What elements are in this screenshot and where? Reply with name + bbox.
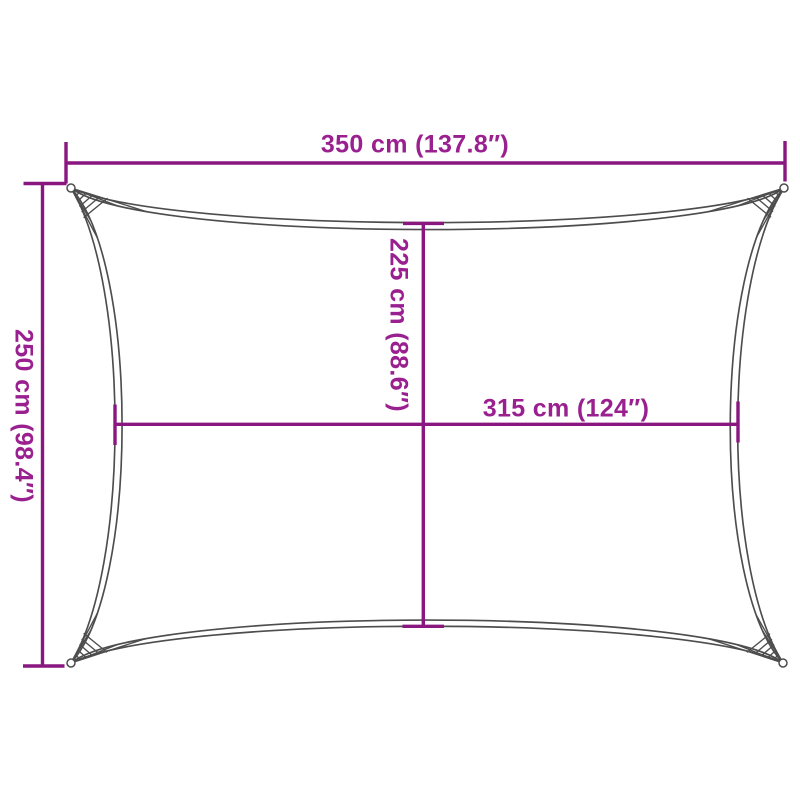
svg-text:225 cm (88.6″): 225 cm (88.6″) (384, 238, 412, 412)
svg-text:350 cm (137.8″): 350 cm (137.8″) (321, 131, 509, 159)
svg-text:315 cm (124″): 315 cm (124″) (483, 394, 650, 422)
svg-text:250 cm (98.4″): 250 cm (98.4″) (10, 329, 38, 503)
